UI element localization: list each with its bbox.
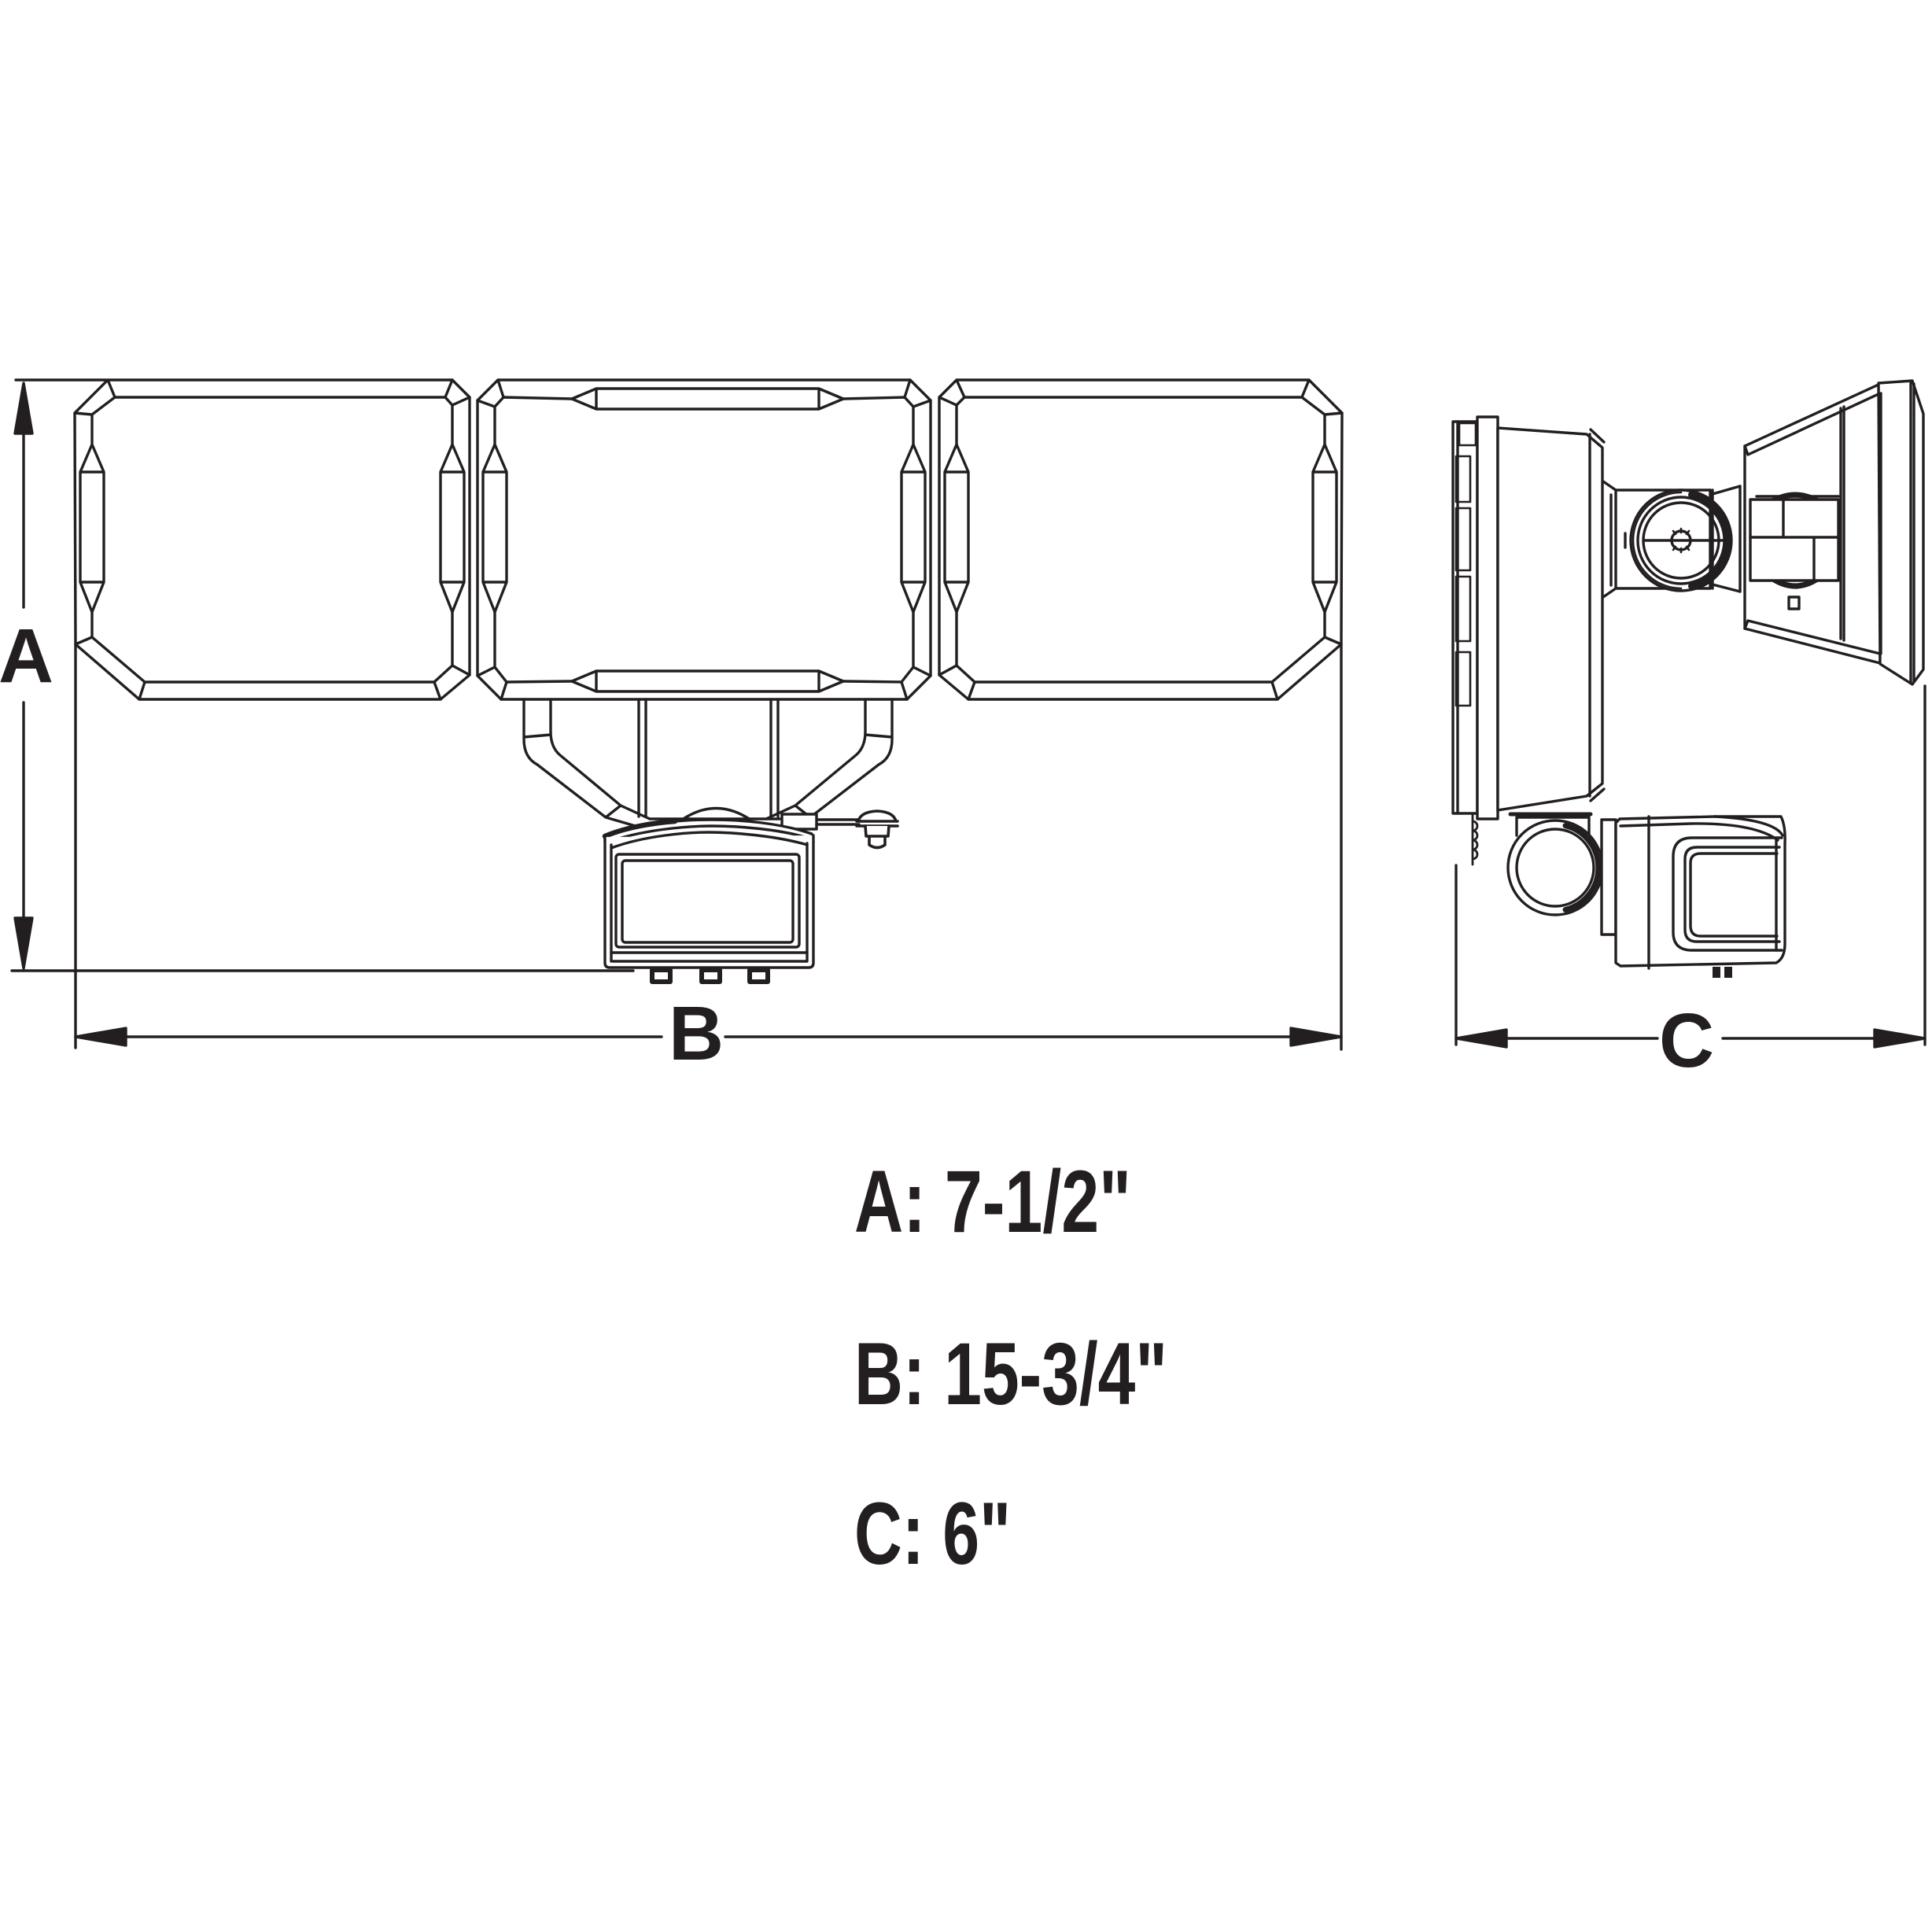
svg-text:B: 15-3/4": B: 15-3/4"	[854, 1325, 1167, 1423]
svg-text:A: A	[0, 613, 53, 699]
svg-text:B: B	[669, 990, 724, 1076]
svg-text:C: C	[1659, 997, 1714, 1083]
svg-text:A: 7-1/2": A: 7-1/2"	[854, 1152, 1131, 1251]
svg-text:C: 6": C: 6"	[854, 1484, 1011, 1583]
